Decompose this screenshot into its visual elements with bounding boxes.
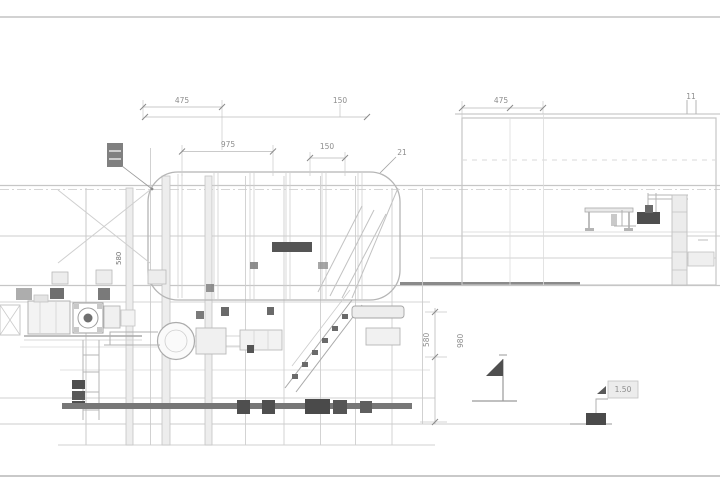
shaft-band	[62, 399, 412, 414]
bolt-pad	[97, 327, 102, 332]
elevation-note-marker: 1.50	[570, 381, 638, 425]
note-text: 1.50	[615, 385, 632, 394]
bolt-pad	[97, 304, 102, 309]
dim-text: 475	[175, 96, 190, 105]
bench-mid-piece	[611, 214, 617, 226]
pipe-column	[672, 195, 687, 285]
note-anchor-block	[586, 413, 606, 425]
detail-block	[250, 262, 258, 269]
stair-step	[302, 362, 308, 367]
drawing-canvas: 475 150 975 150 21	[0, 0, 720, 480]
coupling-block	[121, 310, 135, 326]
right-equipment-box	[462, 114, 716, 285]
bolt-pad	[74, 304, 79, 309]
bench-top	[585, 208, 633, 212]
bench-foot	[585, 228, 594, 231]
dark-fitting	[50, 288, 64, 299]
elevation-flag-marker	[472, 355, 517, 401]
shaft-flange	[360, 401, 372, 413]
dim-text-rotated: 980	[456, 333, 465, 348]
right-pipe-column	[672, 195, 687, 285]
detail-block	[318, 262, 328, 269]
callout-21: 21	[380, 148, 407, 173]
dark-fitting	[16, 288, 32, 300]
left-cross-bracing	[58, 190, 150, 263]
dark-fitting	[98, 288, 110, 300]
motor-cap	[34, 295, 48, 302]
detail-block	[247, 345, 254, 353]
anchor-block	[72, 391, 85, 400]
corner-detail-box	[688, 252, 714, 266]
gear-block	[240, 330, 282, 350]
dim-text: 475	[494, 96, 509, 105]
shaft-flange	[333, 400, 347, 414]
dim-text: 975	[221, 140, 236, 149]
tag-block	[107, 143, 123, 167]
bench-stand	[585, 208, 633, 231]
item-tag	[107, 143, 153, 190]
flag-triangle	[486, 359, 503, 376]
leader-dot	[151, 188, 154, 191]
shaft-flange	[262, 400, 275, 414]
dim-text: 150	[320, 142, 335, 151]
elbow-step-block	[645, 205, 653, 213]
vessel-dark-bar	[272, 242, 312, 252]
volute-circle	[158, 323, 195, 360]
detail-block	[196, 311, 204, 319]
engineering-drawing: 475 150 975 150 21	[0, 0, 720, 480]
bench-foot	[624, 228, 633, 231]
stair-step	[312, 350, 318, 355]
stair-step	[292, 374, 298, 379]
dim-text: 150	[333, 96, 348, 105]
callout-leader	[380, 157, 396, 173]
callout-text: 21	[397, 148, 407, 157]
shelf-box	[148, 270, 166, 284]
motor-block	[28, 301, 70, 334]
stair-handrail	[292, 290, 350, 366]
dim-upper-small: 150	[307, 142, 348, 176]
shaft-flange	[237, 400, 250, 414]
note-leader	[596, 399, 608, 413]
detail-block	[221, 307, 229, 316]
dim-text-rotated-left: 580	[115, 252, 123, 265]
elbow-dark-block	[637, 212, 660, 224]
stair-step	[342, 314, 348, 319]
shaft-flange	[305, 399, 330, 414]
dim-text-rotated: 580	[422, 332, 431, 347]
bearing-block	[196, 328, 226, 354]
shelf-box	[96, 270, 112, 284]
bolt-pad	[74, 327, 79, 332]
ladder-diagonal	[330, 210, 374, 296]
benchmark-symbols: 1.50	[472, 355, 638, 425]
dim-top-right: 475	[459, 96, 546, 118]
staircase	[285, 290, 404, 392]
stair-step	[322, 338, 328, 343]
shaft-center	[84, 314, 93, 323]
note-slope-triangle	[597, 386, 606, 394]
pipe-block	[366, 328, 400, 345]
dim-top-left: 475	[140, 96, 225, 150]
dim-upper-span: 975	[179, 140, 276, 176]
pipe-segment	[352, 306, 404, 318]
dim-top-right-small: 11	[686, 92, 696, 114]
ladder-diagonal	[352, 188, 398, 298]
coupling-block	[104, 306, 120, 328]
stair-step	[332, 326, 338, 331]
pump-end-flange	[73, 303, 103, 333]
detail-block	[206, 284, 214, 292]
dim-text: 11	[686, 92, 696, 101]
shelf-box	[52, 272, 68, 284]
dim-vertical-right: 580 980	[420, 308, 465, 425]
detail-block	[267, 307, 274, 315]
anchor-block	[72, 380, 85, 389]
